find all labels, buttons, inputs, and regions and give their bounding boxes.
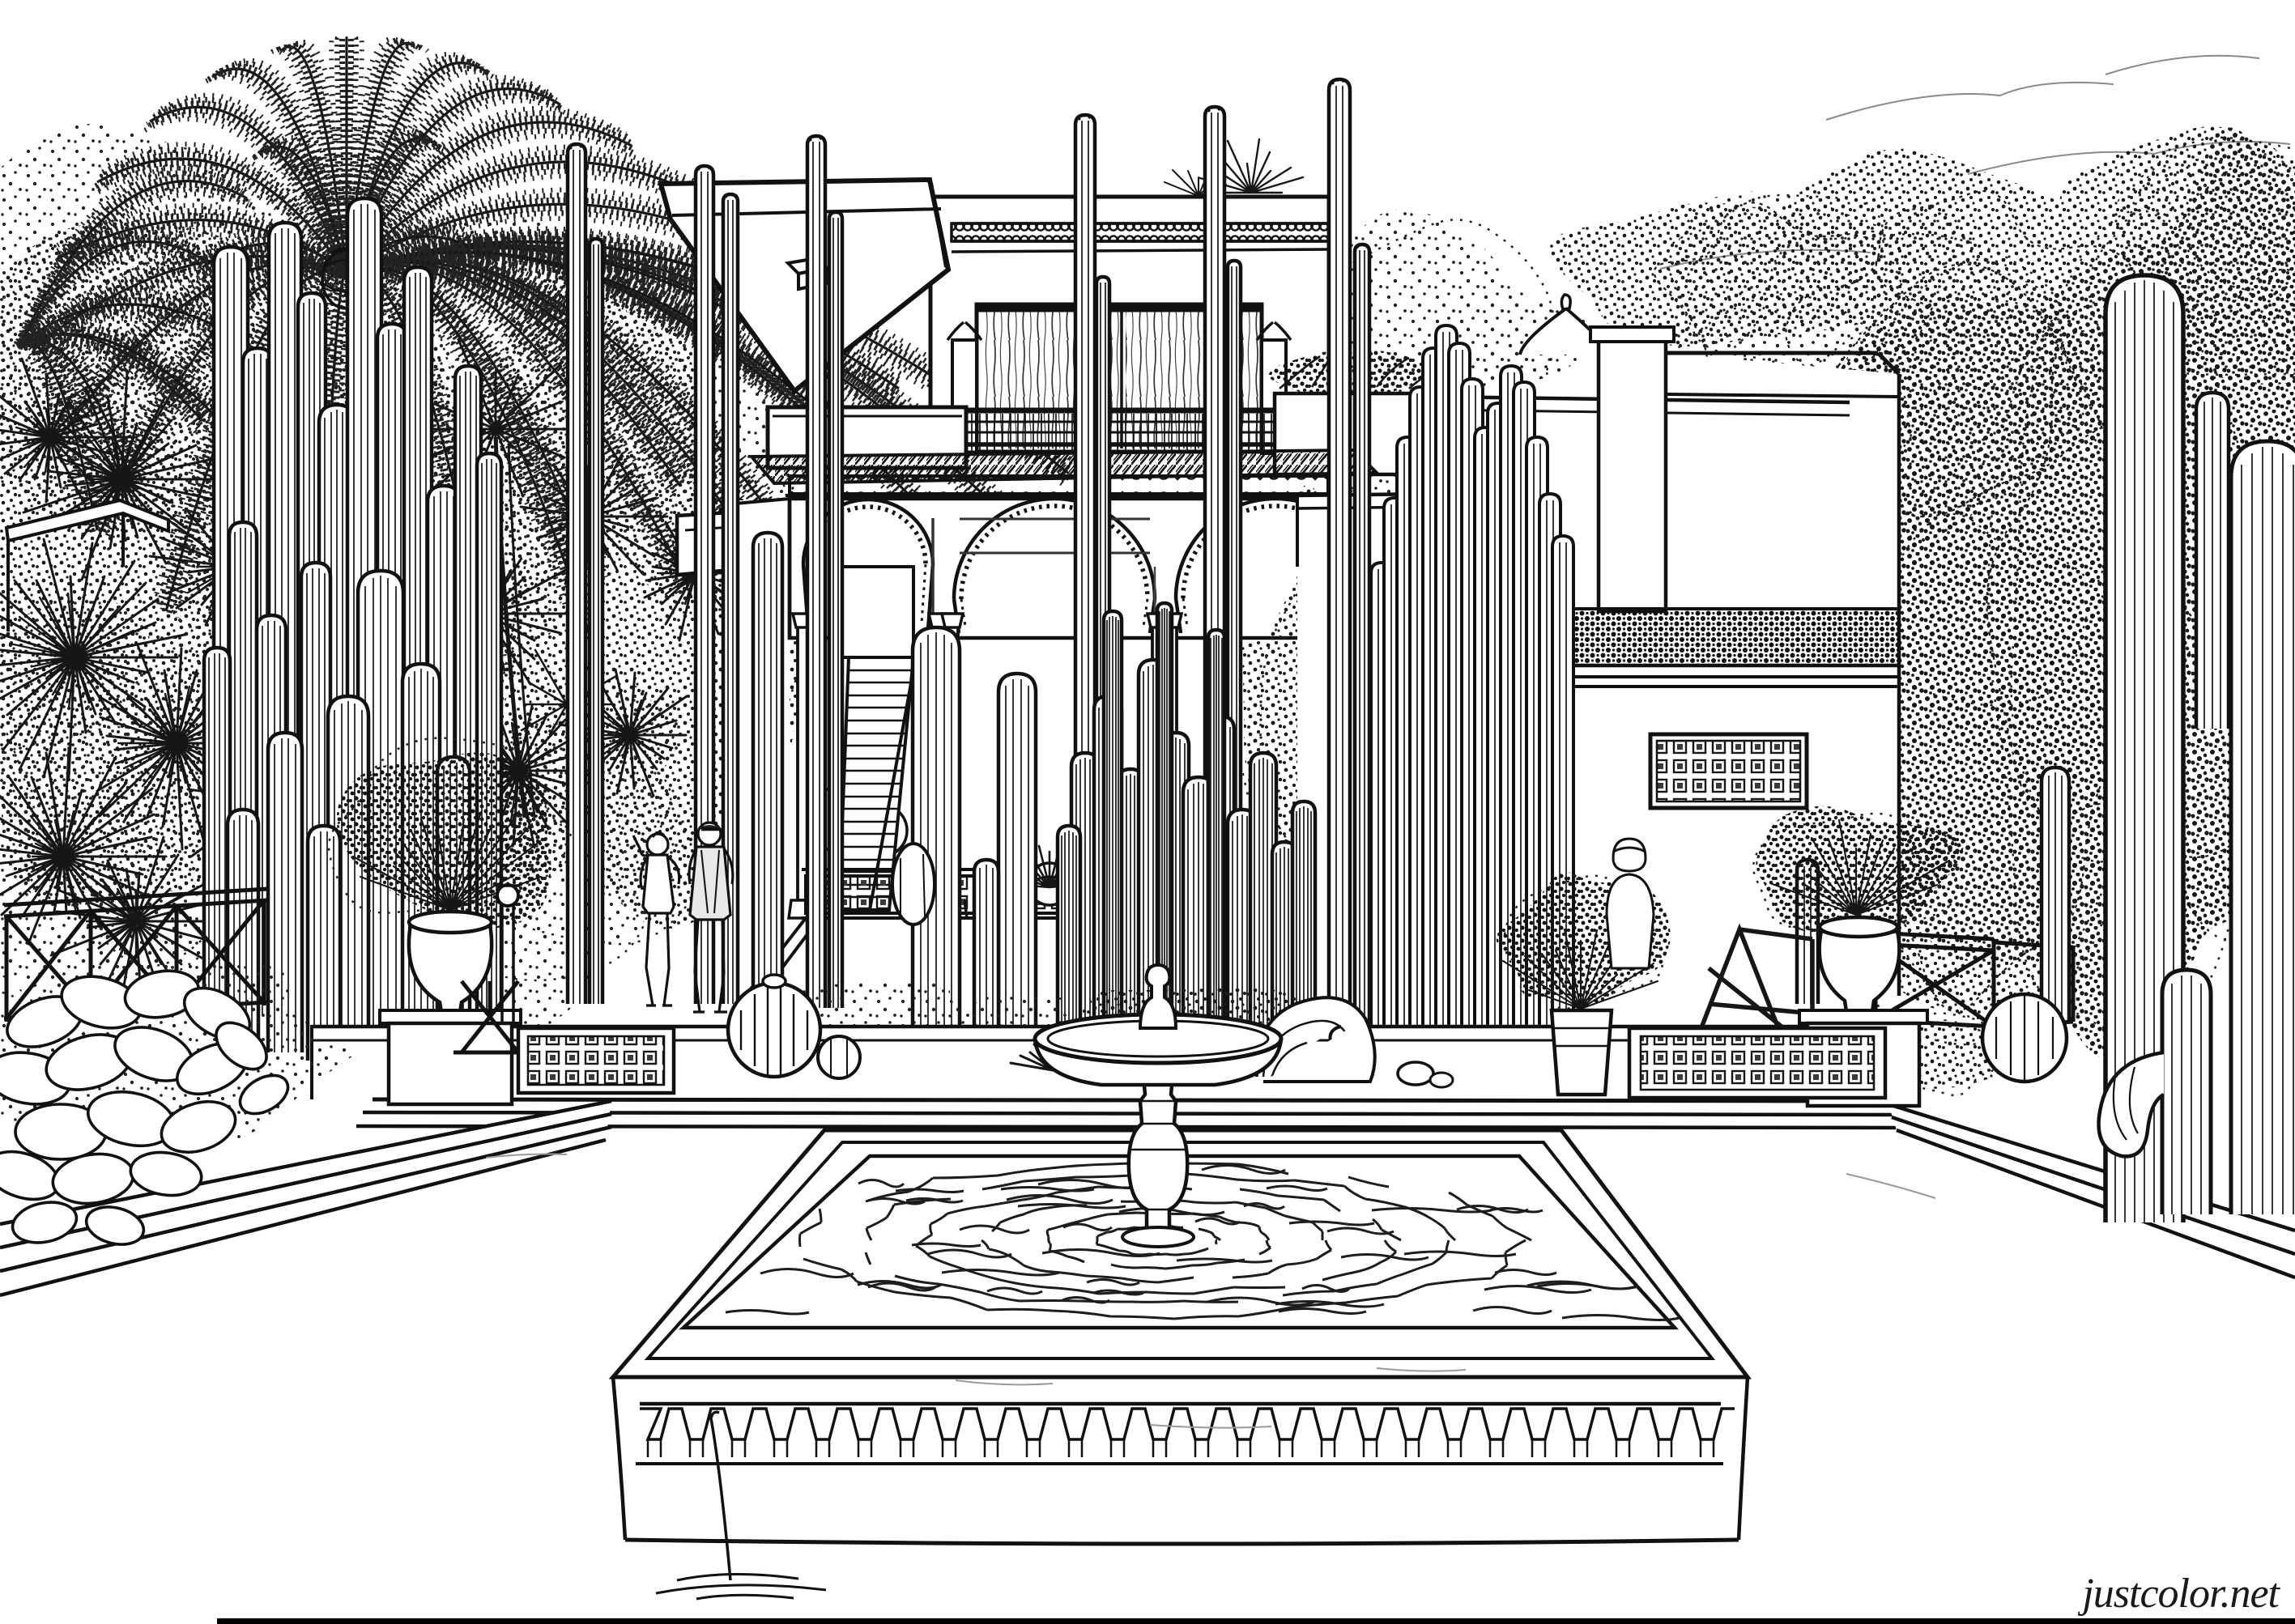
svg-text:justcolor.net: justcolor.net	[2077, 1571, 2280, 1617]
